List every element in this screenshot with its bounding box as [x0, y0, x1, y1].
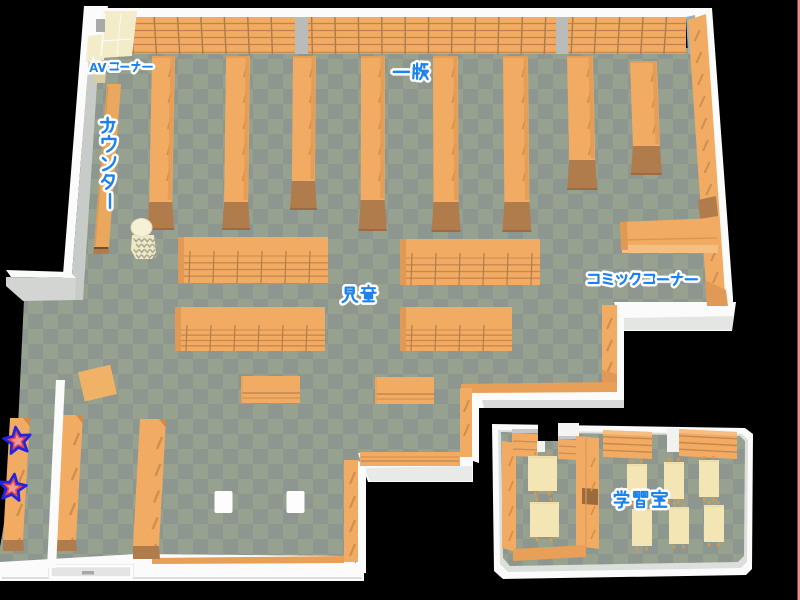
svg-text:AV: AV — [89, 60, 106, 75]
